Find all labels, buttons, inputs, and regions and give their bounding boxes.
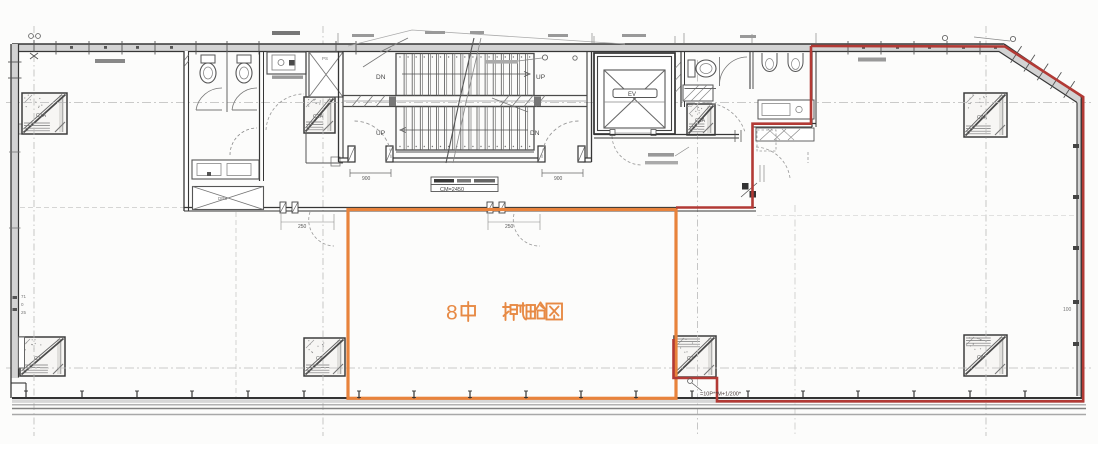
svg-text:DN: DN	[530, 130, 540, 137]
svg-text:100: 100	[1063, 307, 1072, 313]
svg-text:900: 900	[554, 176, 563, 182]
svg-text:250: 250	[298, 224, 307, 230]
svg-text:C1: C1	[34, 356, 41, 362]
svg-text:25: 25	[21, 310, 27, 315]
svg-text:DPS: DPS	[218, 196, 227, 201]
svg-text:250: 250	[505, 224, 514, 230]
svg-text:=10P**M+1/200*: =10P**M+1/200*	[700, 392, 742, 398]
svg-text:CM=2450: CM=2450	[440, 187, 464, 193]
svg-text:900: 900	[362, 176, 371, 182]
svg-text:8: 8	[446, 302, 458, 325]
svg-text:C4: C4	[977, 355, 984, 361]
svg-text:C2A: C2A	[313, 114, 324, 120]
svg-text:C3A: C3A	[695, 118, 706, 124]
svg-text:EV: EV	[628, 92, 636, 98]
svg-text:DN: DN	[376, 74, 386, 81]
svg-text:71: 71	[21, 294, 27, 299]
svg-text:PS: PS	[322, 56, 328, 61]
svg-text:C1A: C1A	[36, 113, 47, 119]
svg-text:C2: C2	[316, 356, 323, 362]
svg-text:C3: C3	[687, 356, 694, 362]
svg-text:UP: UP	[376, 130, 385, 137]
svg-text:UP: UP	[536, 74, 545, 81]
